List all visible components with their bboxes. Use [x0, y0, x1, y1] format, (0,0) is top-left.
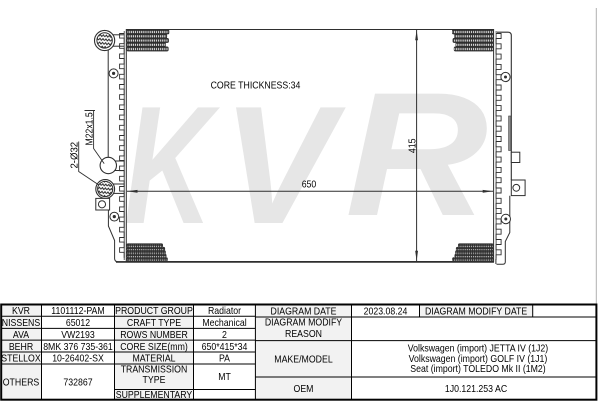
svg-text:Radiator: Radiator	[208, 306, 242, 317]
svg-text:1101112-PAM: 1101112-PAM	[51, 306, 104, 317]
svg-text:TYPE: TYPE	[143, 375, 166, 386]
svg-text:1J0.121.253 AC: 1J0.121.253 AC	[445, 384, 508, 395]
svg-text:MAKE/MODEL: MAKE/MODEL	[274, 355, 333, 366]
svg-text:REASON: REASON	[285, 329, 322, 340]
svg-text:STELLOX: STELLOX	[1, 354, 41, 365]
svg-text:MATERIAL: MATERIAL	[132, 354, 175, 365]
svg-text:SUPPLEMENTARY: SUPPLEMENTARY	[116, 390, 193, 401]
svg-text:Seat (import) TOLEDO Mk II (1M: Seat (import) TOLEDO Mk II (1M2)	[410, 364, 545, 375]
svg-text:CRAFT TYPE: CRAFT TYPE	[127, 318, 181, 329]
svg-text:PRODUCT GROUP: PRODUCT GROUP	[115, 306, 193, 317]
svg-text:Mechanical: Mechanical	[202, 318, 246, 329]
svg-text:DIAGRAM DATE: DIAGRAM DATE	[271, 306, 337, 317]
svg-text:OEM: OEM	[294, 384, 314, 395]
svg-text:2: 2	[222, 330, 227, 341]
svg-text:DIAGRAM MODIFY DATE: DIAGRAM MODIFY DATE	[425, 306, 527, 317]
svg-text:AVA: AVA	[13, 330, 29, 341]
svg-text:732867: 732867	[63, 378, 92, 389]
svg-text:NISSENS: NISSENS	[2, 318, 41, 329]
svg-text:VW2193: VW2193	[61, 330, 95, 341]
svg-text:OTHERS: OTHERS	[3, 378, 40, 389]
svg-text:K: K	[124, 72, 221, 259]
svg-text:65012: 65012	[66, 318, 91, 329]
svg-text:CORE SIZE(mm): CORE SIZE(mm)	[120, 342, 188, 353]
svg-text:2023.08.24: 2023.08.24	[364, 306, 408, 317]
svg-text:415: 415	[408, 138, 419, 153]
svg-text:V: V	[222, 71, 346, 259]
svg-text:CORE THICKNESS:34: CORE THICKNESS:34	[211, 81, 301, 92]
svg-text:650*415*34: 650*415*34	[202, 342, 248, 353]
svg-text:PA: PA	[219, 354, 230, 365]
svg-text:DIAGRAM MODIFY: DIAGRAM MODIFY	[265, 318, 342, 329]
svg-text:650: 650	[302, 180, 317, 191]
svg-text:BEHR: BEHR	[9, 342, 33, 353]
svg-text:ROWS NUMBER: ROWS NUMBER	[120, 330, 188, 341]
svg-text:10-26402-SX: 10-26402-SX	[52, 354, 104, 365]
svg-text:KVR: KVR	[12, 306, 30, 317]
svg-text:TRANSMISSION: TRANSMISSION	[121, 364, 188, 375]
svg-text:8MK 376 735-361: 8MK 376 735-361	[43, 342, 113, 353]
svg-text:MT: MT	[218, 372, 231, 383]
